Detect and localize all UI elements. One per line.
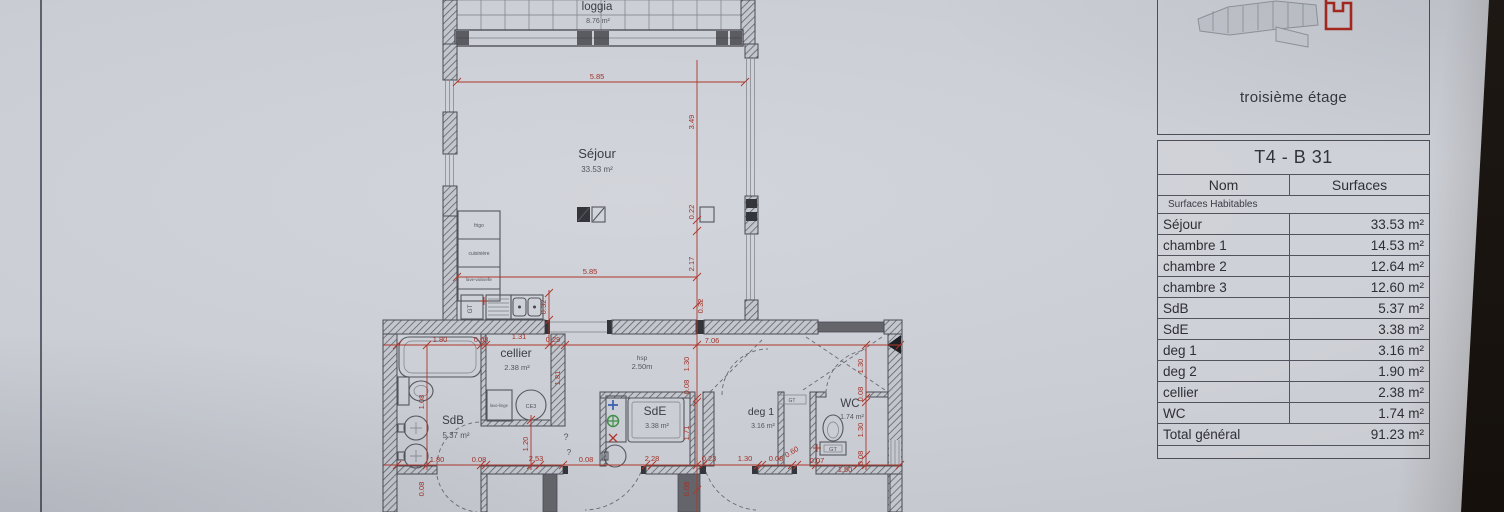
dim-label: 2.17 bbox=[687, 257, 696, 272]
dim-label: 1.30 bbox=[856, 423, 865, 438]
dim-label: 7.06 bbox=[705, 336, 720, 345]
hsp-label: hsp bbox=[637, 355, 648, 362]
appliance-label-frigo: frigo bbox=[474, 223, 484, 229]
dim-label: 1.80 bbox=[430, 455, 445, 464]
dimension-lines bbox=[383, 60, 904, 512]
room-label-loggia: loggia bbox=[582, 1, 613, 13]
table-filler bbox=[1158, 445, 1429, 458]
dim-label: 0.22 bbox=[687, 205, 696, 220]
dim-label: 0.32 bbox=[696, 299, 705, 314]
room-name: WC bbox=[1158, 403, 1289, 423]
room-surface: 12.64 m² bbox=[1289, 256, 1429, 276]
total-label: Total général bbox=[1158, 427, 1240, 442]
surfaces-table: T4 - B 31 Nom Surfaces Surfaces Habitabl… bbox=[1157, 140, 1430, 459]
room-label-sejour: Séjour bbox=[578, 146, 616, 161]
room-surface: 3.38 m² bbox=[1289, 319, 1429, 339]
question-mark: ? bbox=[567, 448, 572, 457]
table-row: SdE 3.38 m² bbox=[1158, 318, 1429, 339]
dim-label: 1.50 bbox=[838, 465, 853, 474]
room-name: chambre 3 bbox=[1158, 277, 1289, 297]
appliance-label-lave-vaisselle: lave-vaisselle bbox=[466, 277, 492, 282]
scanned-floor-plan-photo: 5.85 3.49 0.22 2.17 5.85 0.32 0.32 1.80 … bbox=[0, 0, 1504, 512]
dim-label: 0.08 bbox=[856, 451, 865, 466]
col-header-nom: Nom bbox=[1158, 175, 1289, 195]
room-surface: 33.53 m² bbox=[1289, 214, 1429, 234]
chauffe-eau-label: CE3 bbox=[526, 404, 537, 410]
gt-label: GT bbox=[467, 304, 474, 313]
dim-label: 1.80 bbox=[433, 335, 448, 344]
dim-label: 1.08 bbox=[417, 395, 426, 410]
col-header-surfaces: Surfaces bbox=[1289, 175, 1429, 195]
section-label: Surfaces Habitables bbox=[1158, 195, 1429, 213]
dim-label: 5.85 bbox=[590, 72, 605, 81]
dim-label: 1.30 bbox=[856, 359, 865, 374]
appliance-label-lave-linge: lave-linge bbox=[490, 403, 509, 408]
key-plan-panel: troisième étage bbox=[1157, 0, 1430, 135]
dim-label: 0.32 bbox=[539, 300, 548, 315]
dim-label: 0.08 bbox=[769, 454, 784, 463]
dim-label: 0.08 bbox=[682, 482, 691, 497]
room-area-wc: 1.74 m² bbox=[840, 414, 864, 421]
question-mark: ? bbox=[563, 432, 568, 442]
dim-label: 0.60 bbox=[783, 444, 800, 459]
room-name: deg 2 bbox=[1158, 361, 1289, 381]
room-area-deg1: 3.16 m² bbox=[751, 423, 775, 430]
table-header: Nom Surfaces bbox=[1158, 174, 1429, 195]
kitchen-units bbox=[458, 211, 543, 319]
room-name: chambre 2 bbox=[1158, 256, 1289, 276]
table-row: cellier 2.38 m² bbox=[1158, 381, 1429, 402]
hsp-value: 2.50m bbox=[632, 362, 653, 371]
dim-label: 0.08 bbox=[417, 482, 426, 497]
room-name: cellier bbox=[1158, 382, 1289, 402]
room-label-sdb: SdB bbox=[442, 415, 464, 427]
appliance-label-cuisiniere: cuisinière bbox=[468, 251, 489, 257]
dim-label: 0.08 bbox=[474, 335, 489, 344]
room-label-deg1: deg 1 bbox=[748, 406, 774, 418]
room-name: chambre 1 bbox=[1158, 235, 1289, 255]
table-row: SdB 5.37 m² bbox=[1158, 297, 1429, 318]
table-row: chambre 2 12.64 m² bbox=[1158, 255, 1429, 276]
room-area-sdb: 5.37 m² bbox=[442, 431, 469, 440]
dim-label: 1.20 bbox=[521, 437, 530, 452]
room-surface: 14.53 m² bbox=[1289, 235, 1429, 255]
room-surface: 5.37 m² bbox=[1289, 298, 1429, 318]
dim-label: 0.29 bbox=[546, 335, 561, 344]
walls-upper bbox=[443, 0, 758, 322]
dim-label: 1.30 bbox=[738, 454, 753, 463]
dim-label: 5.85 bbox=[583, 267, 598, 276]
room-surface: 12.60 m² bbox=[1289, 277, 1429, 297]
room-name: SdB bbox=[1158, 298, 1289, 318]
dim-label: 0.08 bbox=[472, 455, 487, 464]
room-surface: 1.90 m² bbox=[1289, 361, 1429, 381]
table-row: Séjour 33.53 m² bbox=[1158, 213, 1429, 234]
room-name: deg 1 bbox=[1158, 340, 1289, 360]
dim-label: 3.49 bbox=[687, 115, 696, 130]
room-area-sde: 3.38 m² bbox=[645, 423, 669, 430]
room-area-cellier: 2.38 m² bbox=[504, 363, 530, 372]
room-area-sejour: 33.53 m² bbox=[581, 165, 613, 174]
dim-label: 1.71 bbox=[682, 426, 691, 441]
dim-label: 0.08 bbox=[579, 455, 594, 464]
dimension-labels: 5.85 3.49 0.22 2.17 5.85 0.32 0.32 1.80 … bbox=[417, 72, 865, 496]
table-row: deg 2 1.90 m² bbox=[1158, 360, 1429, 381]
dim-label: 1.81 bbox=[553, 371, 562, 386]
room-surface: 1.74 m² bbox=[1289, 403, 1429, 423]
total-value: 91.23 m² bbox=[1371, 427, 1429, 442]
duct-symbol bbox=[577, 207, 605, 222]
room-labels: loggia 8.76 m² Séjour 33.53 m² cellier 2… bbox=[442, 1, 864, 457]
room-name: Séjour bbox=[1158, 214, 1289, 234]
table-row: deg 1 3.16 m² bbox=[1158, 339, 1429, 360]
floor-label: troisième étage bbox=[1158, 89, 1429, 106]
room-area-loggia: 8.76 m² bbox=[586, 18, 610, 25]
dim-label: 0.23 bbox=[702, 454, 717, 463]
dim-label: 2.53 bbox=[529, 454, 544, 463]
gt-label: GT bbox=[789, 398, 796, 404]
room-label-cellier: cellier bbox=[500, 346, 531, 360]
room-label-sde: SdE bbox=[644, 404, 667, 418]
table-row: chambre 1 14.53 m² bbox=[1158, 234, 1429, 255]
dim-label: 1.31 bbox=[512, 332, 527, 341]
unit-title: T4 - B 31 bbox=[1158, 141, 1429, 174]
key-plan-thumbnail bbox=[1158, 0, 1426, 59]
gt-label: GT bbox=[829, 447, 837, 453]
room-surface: 2.38 m² bbox=[1289, 382, 1429, 402]
dim-label: 2.28 bbox=[645, 454, 660, 463]
total-row: Total général 91.23 m² bbox=[1158, 423, 1429, 445]
dim-label: 0.07 bbox=[810, 456, 825, 465]
room-name: SdE bbox=[1158, 319, 1289, 339]
dim-label: 0.08 bbox=[682, 380, 691, 395]
room-surface: 3.16 m² bbox=[1289, 340, 1429, 360]
dim-label: 1.30 bbox=[682, 357, 691, 372]
room-label-wc: WC bbox=[840, 398, 859, 410]
table-row: chambre 3 12.60 m² bbox=[1158, 276, 1429, 297]
table-row: WC 1.74 m² bbox=[1158, 402, 1429, 423]
